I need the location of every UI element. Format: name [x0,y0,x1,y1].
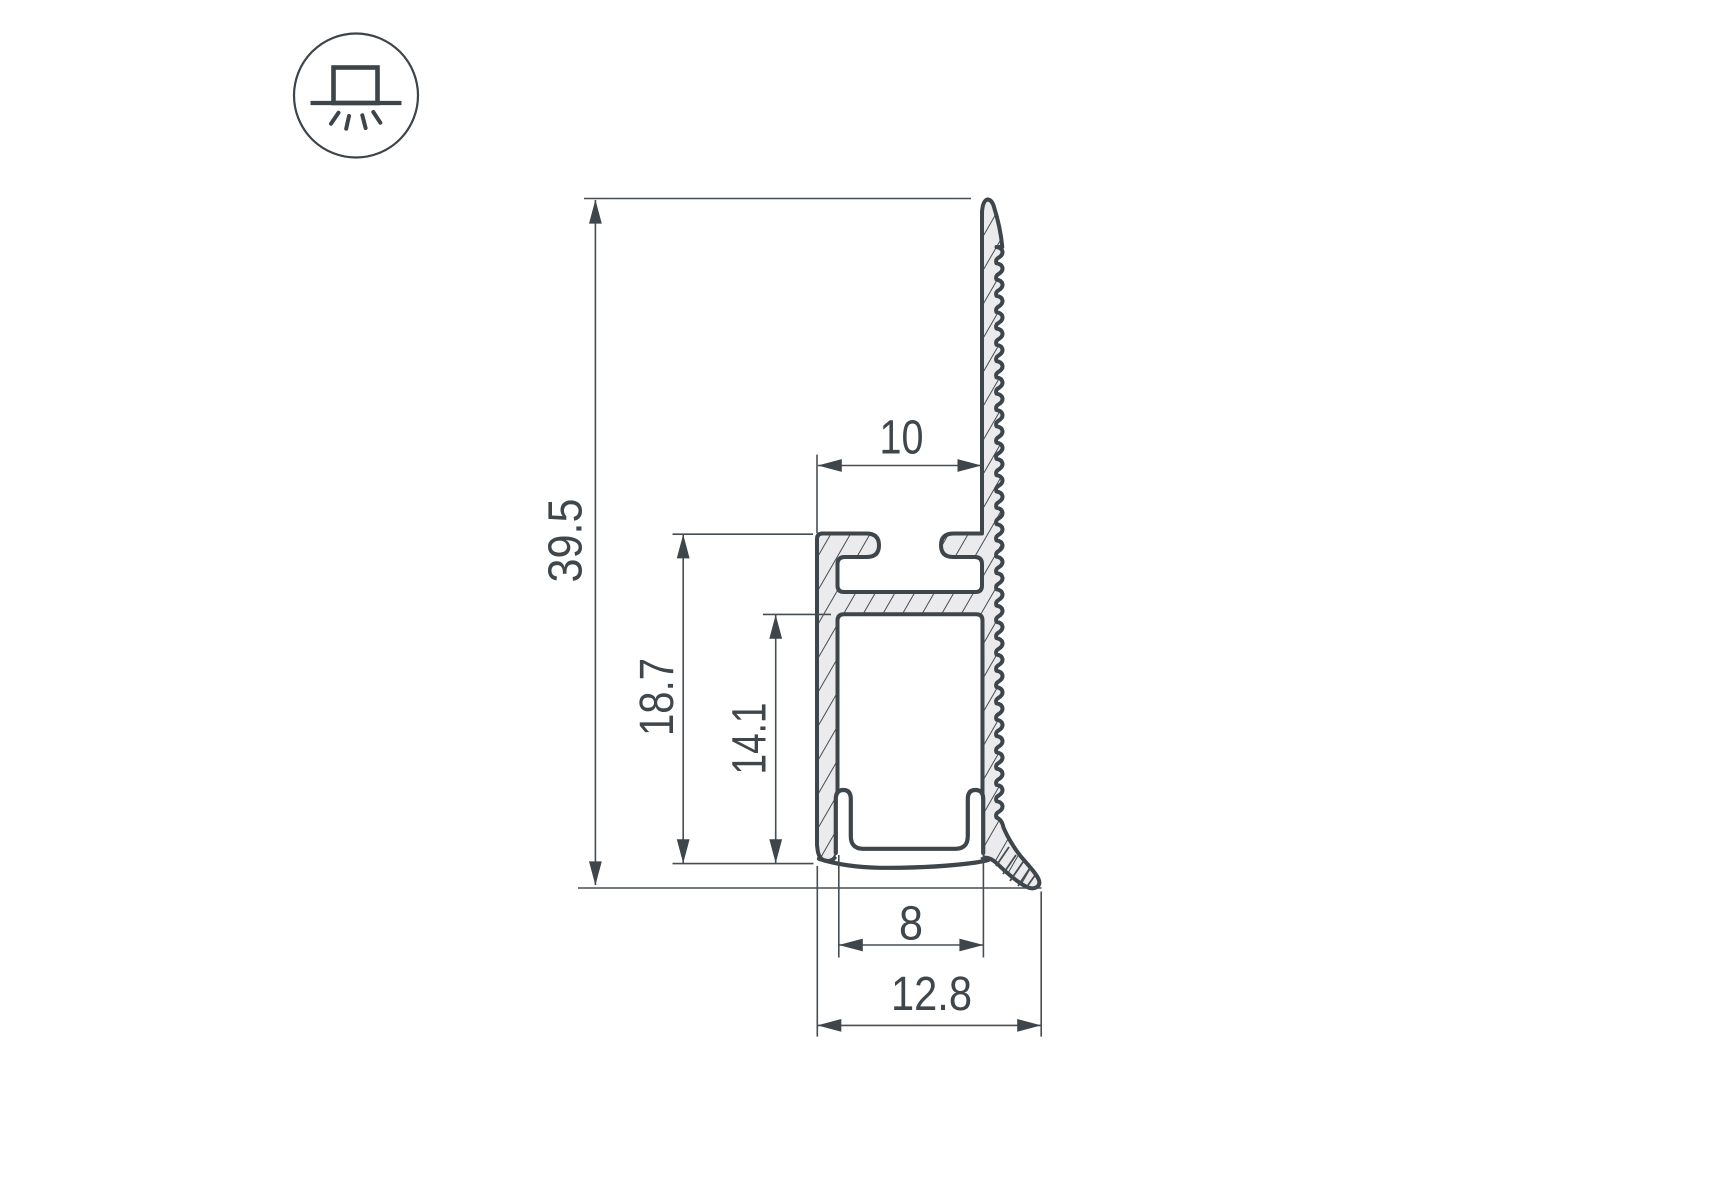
svg-text:39.5: 39.5 [540,499,593,583]
svg-text:18.7: 18.7 [631,658,684,736]
svg-text:8: 8 [899,898,923,951]
svg-text:14.1: 14.1 [724,703,777,775]
svg-text:12.8: 12.8 [891,968,972,1021]
svg-text:10: 10 [880,412,924,465]
